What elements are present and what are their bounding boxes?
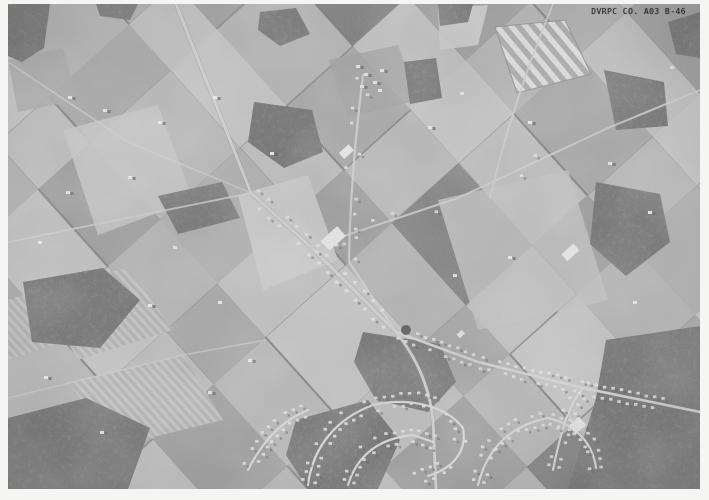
scanned-photo-sheet: DVRPC CO. A03 B-46 bbox=[0, 0, 709, 500]
photo-index-label: DVRPC CO. A03 B-46 bbox=[591, 7, 686, 17]
aerial-photo-canvas bbox=[8, 4, 700, 489]
aerial-photograph: DVRPC CO. A03 B-46 bbox=[8, 4, 700, 489]
photo-tone-overlays bbox=[8, 4, 700, 489]
